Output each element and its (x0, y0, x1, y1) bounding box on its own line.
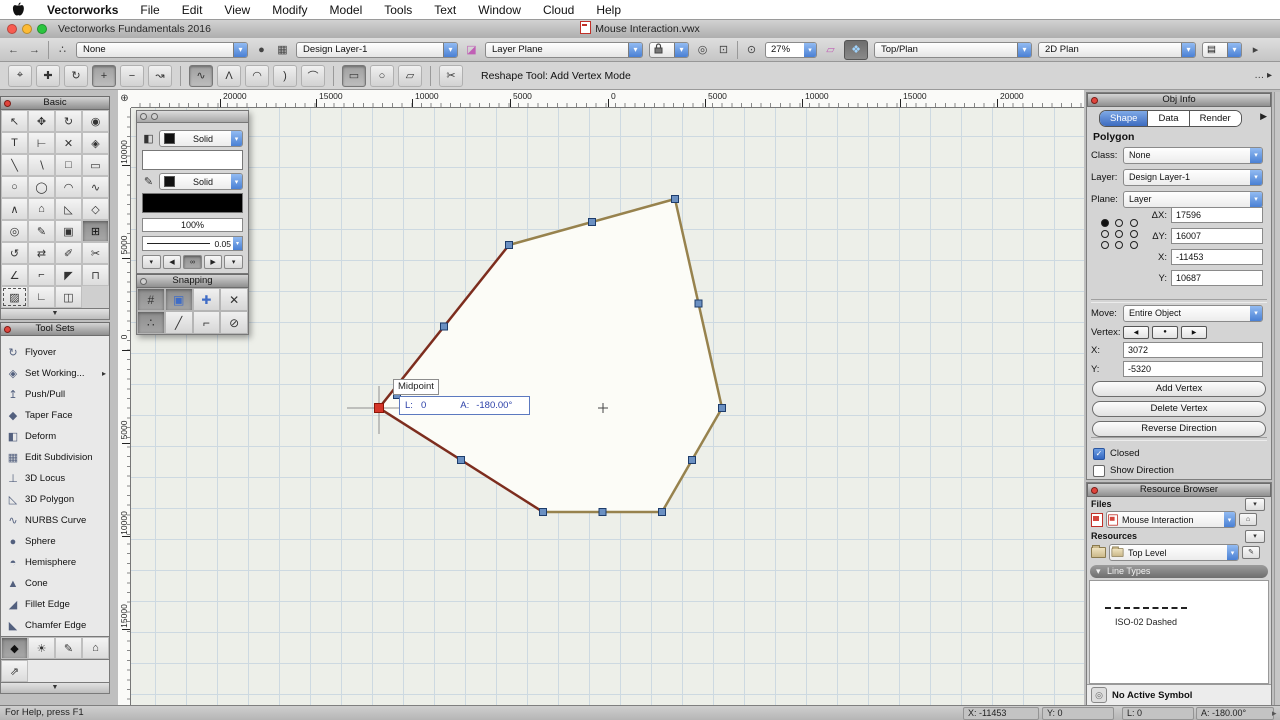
fill-swatch (164, 133, 175, 144)
basic-palette-header[interactable]: Basic (0, 96, 110, 110)
chevron-down-icon: ▾ (1250, 306, 1262, 321)
class-row: Class: None▾ (1091, 147, 1263, 163)
mode-delete-vertex-icon[interactable]: − (120, 65, 144, 87)
midpoint-handle[interactable] (689, 457, 696, 464)
add-vertex-button[interactable]: Add Vertex (1092, 381, 1266, 397)
toolset-tab-dims-notes[interactable]: ✎ (55, 637, 82, 659)
tool-3d-polygon[interactable]: ◺ (55, 198, 82, 220)
toolset-push-pull-icon: ↥ (6, 388, 20, 401)
mode-vertex-cubic-icon[interactable]: ) (273, 65, 297, 87)
menu-edit[interactable]: Edit (182, 3, 203, 17)
dimension-field[interactable]: 10687 (1171, 270, 1263, 286)
reference-dot[interactable] (1101, 241, 1109, 249)
show-direction-checkbox[interactable] (1093, 465, 1105, 477)
toolset-3d-polygon[interactable]: ◺3D Polygon (1, 489, 109, 510)
view-history-icon[interactable]: ∴ (55, 43, 70, 56)
tool-attribute-brush[interactable]: ✐ (55, 242, 82, 264)
tool-eyedropper[interactable]: ✎ (28, 220, 55, 242)
attr-prev[interactable]: ◀ (163, 255, 182, 269)
line-types-list[interactable]: ISO-02 Dashed (1089, 580, 1269, 684)
tool-eraser[interactable]: ▨ (1, 286, 28, 308)
reference-dot[interactable] (1115, 241, 1123, 249)
ruler-label: 0 (119, 324, 129, 350)
reference-dot[interactable] (1115, 230, 1123, 238)
fill-color-preview[interactable] (142, 150, 243, 170)
mode-move-vertex-icon[interactable]: ⌖ (8, 65, 32, 87)
tool-reshape[interactable]: ⊞ (82, 220, 109, 242)
menu-cloud[interactable]: Cloud (543, 3, 574, 17)
separator (430, 66, 431, 86)
zoom-page-icon[interactable]: ◎ (695, 43, 710, 56)
zoom-marquee-icon[interactable]: ⊡ (716, 43, 731, 56)
obj-info-tabs: ShapeDataRender (1099, 110, 1242, 127)
vertex-y-row: Y: -5320 (1091, 361, 1263, 377)
tool-line[interactable]: ╲ (1, 154, 28, 176)
midpoint-handle[interactable] (695, 300, 702, 307)
vertex-x-field[interactable]: 3072 (1123, 342, 1263, 358)
collapse-triangle-icon: ▾ (1096, 566, 1101, 576)
tool-sets-more-icon[interactable]: ▼ (0, 683, 110, 694)
length-value[interactable]: 0 (421, 400, 426, 411)
palette-collapse-icon[interactable] (151, 113, 158, 120)
toolset-3d-locus[interactable]: ⊥3D Locus (1, 468, 109, 489)
fill-bucket-icon: ◧ (142, 132, 155, 145)
symbol-icon: ◎ (1091, 687, 1107, 703)
tab-shape[interactable]: Shape (1100, 111, 1148, 126)
ruler-major-tick (997, 99, 998, 107)
tool-connect-combine[interactable]: ⊓ (82, 264, 109, 286)
vertical-ruler: 100005000050001000015000 (118, 108, 131, 705)
vertex-current-button[interactable]: ● (1152, 326, 1178, 339)
reverse-direction-button[interactable]: Reverse Direction (1092, 421, 1266, 437)
tool-zoom[interactable]: ◉ (82, 110, 109, 132)
toolset-chamfer-edge[interactable]: ◣Chamfer Edge (1, 615, 109, 636)
closed-checkbox[interactable]: ✓ (1093, 448, 1105, 460)
dimension-label: X: (1145, 252, 1171, 263)
chevron-down-icon: ▾ (1250, 192, 1262, 207)
mode-bar-overflow-icon[interactable]: … ▸ (1254, 70, 1272, 81)
obj-info-header[interactable]: Obj Info (1087, 93, 1271, 107)
menu-modify[interactable]: Modify (272, 3, 307, 17)
reference-dot[interactable] (1101, 230, 1109, 238)
dimension-label: ΔY: (1145, 231, 1171, 242)
menu-view[interactable]: View (224, 3, 250, 17)
line-weight-value[interactable]: 0.05 (214, 239, 233, 249)
mode-marquee-rect-icon[interactable]: ▭ (342, 65, 366, 87)
polygon-drawing (131, 108, 1084, 705)
chevron-down-icon: ▾ (231, 174, 242, 189)
layer-dropdown[interactable]: Design Layer-1▾ (1123, 169, 1263, 186)
tool-dimension[interactable]: ⊢ (28, 132, 55, 154)
toolset-taper-face-icon: ◆ (6, 409, 20, 422)
ruler-major-tick (510, 99, 511, 107)
ruler-major-tick (316, 99, 317, 107)
palette-close-icon[interactable] (4, 100, 11, 107)
palette-close-icon[interactable] (1091, 97, 1098, 104)
forward-view-icon[interactable]: → (27, 44, 42, 56)
snapping-grid: #▣✚✕∴╱⌐⊘ (136, 288, 249, 335)
tool-selection[interactable]: ↖ (1, 110, 28, 132)
class-dropdown[interactable]: None▾ (1123, 147, 1263, 164)
toolset-sphere[interactable]: ●Sphere (1, 531, 109, 552)
toolset-edit-subdivision[interactable]: ▦Edit Subdivision (1, 447, 109, 468)
mode-change-vertex-icon[interactable]: ↻ (64, 65, 88, 87)
ruler-label: 0 (611, 91, 616, 101)
snap-distance[interactable]: ╱ (165, 311, 193, 334)
chevron-down-icon: ▾ (1227, 545, 1238, 560)
toolbar-overflow-icon[interactable]: ▸ (1248, 43, 1263, 56)
status-y-field[interactable]: Y: 0 (1042, 707, 1114, 720)
menu-file[interactable]: File (140, 3, 159, 17)
tabs-overflow-icon[interactable]: ▶ (1260, 111, 1267, 122)
ruler-label: 20000 (223, 91, 247, 101)
tool-shear[interactable]: ∠ (1, 264, 28, 286)
ruler-label: 15000 (319, 91, 343, 101)
snap-smart-points[interactable]: ∴ (137, 311, 165, 334)
delete-vertex-button[interactable]: Delete Vertex (1092, 401, 1266, 417)
menu-tools[interactable]: Tools (384, 3, 412, 17)
chevron-down-icon: ▾ (1227, 43, 1241, 57)
tool-rotate[interactable]: ↺ (1, 242, 28, 264)
plane-dropdown[interactable]: Layer▾ (1123, 191, 1263, 208)
mode-hide-edge-icon[interactable]: ↝ (148, 65, 172, 87)
snap-grid[interactable]: # (137, 288, 165, 311)
snap-intersection[interactable]: ✕ (220, 288, 248, 311)
line-weight-preview (147, 243, 210, 244)
angle-value[interactable]: -180.00° (476, 400, 512, 411)
menu-text[interactable]: Text (434, 3, 456, 17)
tool-clip[interactable]: ▣ (55, 220, 82, 242)
active-vertex-handle[interactable] (375, 404, 384, 413)
opacity-field[interactable]: 100% (142, 218, 243, 232)
status-x-field[interactable]: X: -11453 (963, 707, 1039, 720)
angle-label: A: (460, 400, 469, 411)
stepper-icon[interactable]: ▾ (804, 43, 816, 57)
ruler-major-tick (608, 99, 609, 107)
menu-help[interactable]: Help (596, 3, 621, 17)
plane-label: Plane: (1091, 194, 1123, 205)
ruler-label: 10000 (805, 91, 829, 101)
layer-options-icon[interactable]: ▦ (275, 43, 290, 56)
ruler-label: 5000 (119, 417, 129, 443)
tool-polygon[interactable]: ⌂ (28, 198, 55, 220)
palette-close-icon[interactable] (4, 326, 11, 333)
divider (1091, 299, 1267, 303)
home-icon[interactable]: ⌂ (1239, 513, 1257, 526)
vertex-handle[interactable] (719, 405, 726, 412)
toolset-tab-visualization[interactable]: ☀ (28, 637, 55, 659)
resource-browser-palette: Resource Browser Files ▾ Mouse Interacti… (1086, 482, 1272, 706)
status-bar: For Help, press F1 X: -11453 Y: 0 L: 0 A… (0, 705, 1280, 720)
document-icon (580, 21, 591, 34)
checkbox-row: Show Direction (1093, 462, 1265, 479)
dimension-label: Y: (1145, 273, 1171, 284)
chevron-down-icon: ▾ (443, 43, 457, 57)
mode-move-handle-icon[interactable]: ✚ (36, 65, 60, 87)
attr-next[interactable]: ▶ (204, 255, 223, 269)
ruler-major-tick (705, 99, 706, 107)
mode-marquee-polygon-icon[interactable]: ▱ (398, 65, 422, 87)
toolset-sphere-icon: ● (6, 536, 20, 548)
ruler-label: 10000 (415, 91, 439, 101)
resource-folder-dropdown[interactable]: Top Level ▾ (1109, 544, 1239, 561)
toolset-deform[interactable]: ◧Deform (1, 426, 109, 447)
folder-icon (1112, 548, 1124, 557)
line-type-name[interactable]: ISO-02 Dashed (1090, 617, 1202, 627)
vertex-handle[interactable] (540, 509, 547, 516)
ruler-origin-icon: ⊕ (118, 90, 131, 109)
vertex-handle[interactable] (506, 242, 513, 249)
render-sphere-icon[interactable]: ● (254, 44, 269, 56)
stepper-icon[interactable]: ▾ (233, 237, 242, 250)
snapping-palette-header[interactable]: Snapping (136, 274, 249, 288)
separator (180, 66, 181, 86)
checkbox-label: Closed (1110, 448, 1140, 459)
working-plane-icon[interactable]: ◪ (464, 43, 479, 56)
ruler-major-tick (220, 99, 221, 107)
line-type-preview[interactable] (1105, 607, 1187, 609)
vertex-action-buttons: Add VertexDelete VertexReverse Direction (1092, 381, 1266, 441)
submenu-arrow-icon: ▸ (102, 369, 109, 378)
line-weight-control[interactable]: 0.05 ▾ (142, 236, 243, 251)
mode-vertex-tangent-icon[interactable]: ⌒ (301, 65, 325, 87)
active-plane-dropdown[interactable]: Layer Plane▾ (485, 42, 643, 58)
tool-arc[interactable]: ◠ (55, 176, 82, 198)
tool-flyover[interactable]: ↻ (55, 110, 82, 132)
attribute-nav-row: ▾◀∞▶▾ (142, 255, 243, 269)
apple-menu-icon[interactable] (12, 2, 25, 17)
vertex-row: Vertex: ◀●▶ (1091, 324, 1263, 340)
dimension-row: Y:10687 (1145, 270, 1263, 286)
drawing-canvas[interactable]: Midpoint L: 0 A: -180.00° (131, 108, 1084, 705)
active-class-dropdown[interactable]: None▾ (76, 42, 248, 58)
ruler-major-tick (122, 350, 130, 351)
unified-view-button[interactable]: ❖ (844, 40, 868, 60)
saved-views-dropdown[interactable]: ▤ ▾ (1202, 42, 1242, 58)
toolset-tab-3d-modeling[interactable]: ◆ (1, 637, 28, 659)
dimension-field[interactable]: -11453 (1171, 249, 1263, 265)
ruler-label: 20000 (1000, 91, 1024, 101)
vertex-prev-button[interactable]: ◀ (1123, 326, 1149, 339)
toolset-fillet-edge-icon: ◢ (6, 598, 20, 611)
toolset-set-working-plane[interactable]: ◈Set Working...▸ (1, 363, 109, 384)
toolset-nurbs-curve[interactable]: ∿NURBS Curve (1, 510, 109, 531)
toolset-set-working-plane-icon: ◈ (6, 367, 20, 380)
menu-model[interactable]: Model (330, 3, 363, 17)
snap-object[interactable]: ▣ (165, 288, 193, 311)
toolset-taper-face[interactable]: ◆Taper Face (1, 405, 109, 426)
vertex-label: Vertex: (1091, 327, 1123, 338)
status-a-field[interactable]: A: -180.00° (1196, 707, 1274, 720)
magnifier-icon[interactable]: ⊙ (744, 43, 759, 56)
tool-delete[interactable]: ✕ (55, 132, 82, 154)
dimension-row: X:-11453 (1145, 249, 1263, 265)
lock-icon (650, 43, 674, 57)
palette-close-icon[interactable] (1091, 487, 1098, 494)
view-dropdown[interactable]: Top/Plan▾ (874, 42, 1032, 58)
mode-vertex-corner-icon[interactable]: Λ (217, 65, 241, 87)
tool-pan[interactable]: ✥ (28, 110, 55, 132)
help-hint: For Help, press F1 (5, 707, 84, 718)
attributes-title-bar[interactable] (136, 110, 249, 123)
tool-double-line[interactable]: ∖ (28, 154, 55, 176)
snap-tooltip: Midpoint (393, 379, 439, 395)
vertex-y-label: Y: (1091, 364, 1123, 375)
tool-circle[interactable]: ○ (1, 176, 28, 198)
chevron-down-icon: ▾ (231, 131, 242, 146)
reference-dot[interactable] (1130, 241, 1138, 249)
mode-vertex-bezier-icon[interactable]: ◠ (245, 65, 269, 87)
ruler-major-tick (122, 165, 130, 166)
midpoint-handle[interactable] (441, 323, 448, 330)
tool-regular-polygon[interactable]: ◇ (82, 198, 109, 220)
title-bar[interactable]: Vectorworks Fundamentals 2016 Mouse Inte… (0, 20, 1280, 39)
tool-text[interactable]: T (1, 132, 28, 154)
palette-close-icon[interactable] (140, 278, 147, 285)
back-view-icon[interactable]: ← (6, 44, 21, 56)
palette-scroll-strip[interactable] (1274, 92, 1280, 706)
resources-menu-icon[interactable]: ▾ (1245, 530, 1265, 543)
reference-dot[interactable] (1130, 230, 1138, 238)
midpoint-handle[interactable] (458, 457, 465, 464)
basic-tool-palette: Basic ↖✥↻◉T⊢✕◈╲∖□▭○◯◠∿∧⌂◺◇◎✎▣⊞↺⇄✐✂∠⌐◤⊓▨∟… (0, 96, 110, 320)
status-overflow-icon[interactable]: ▸ (1272, 708, 1277, 719)
tool-freehand[interactable]: ∿ (82, 176, 109, 198)
mode-vertex-polyline-icon[interactable]: ∿ (189, 65, 213, 87)
tool-chamfer[interactable]: ◤ (55, 264, 82, 286)
vertex-handle[interactable] (659, 509, 666, 516)
files-label: Files (1091, 499, 1112, 509)
toolset-deform-icon: ◧ (6, 430, 20, 443)
chevron-down-icon: ▾ (1250, 170, 1262, 185)
toolset-edit-subdivision-icon: ▦ (6, 451, 20, 464)
folder-icon (1091, 547, 1106, 558)
tool-move-by-points[interactable]: ∟ (28, 286, 55, 308)
tool-symbol-insert[interactable]: ◫ (55, 286, 82, 308)
tab-data[interactable]: Data (1148, 111, 1189, 126)
tool-sets-header[interactable]: Tool Sets (0, 322, 110, 336)
checkbox-row: ✓Closed (1093, 445, 1265, 462)
menu-vectorworks[interactable]: Vectorworks (47, 3, 118, 17)
zoom-level-field[interactable]: 27%▾ (765, 42, 817, 58)
move-row: Move: Entire Object▾ (1091, 305, 1263, 321)
layer-label: Layer: (1091, 172, 1123, 183)
reference-dot[interactable] (1130, 219, 1138, 227)
tab-render[interactable]: Render (1190, 111, 1241, 126)
tool-mirror[interactable]: ⇄ (28, 242, 55, 264)
palette-close-icon[interactable] (140, 113, 147, 120)
ruler-label: 10000 (119, 139, 129, 165)
vertex-handle[interactable] (672, 196, 679, 203)
dimension-field[interactable]: 16007 (1171, 228, 1263, 244)
reference-point-selector[interactable] (1101, 219, 1141, 249)
resource-browser-header[interactable]: Resource Browser (1087, 483, 1271, 497)
resource-tool-icon[interactable]: ✎ (1242, 546, 1260, 559)
file-row: Mouse Interaction ▾ ⌂ (1091, 511, 1257, 528)
attr-drop-right[interactable]: ▾ (224, 255, 243, 269)
tool-3d-cube[interactable]: ◈ (82, 132, 109, 154)
midpoint-handle[interactable] (589, 219, 596, 226)
ruler-label: 5000 (119, 232, 129, 258)
length-label: L: (405, 400, 413, 411)
pen-color-preview[interactable] (142, 193, 243, 213)
separator (48, 41, 49, 59)
vertex-y-field[interactable]: -5320 (1123, 361, 1263, 377)
tool-polyline[interactable]: ∧ (1, 198, 28, 220)
line-types-section-header[interactable]: ▾ Line Types (1090, 565, 1268, 578)
tool-rectangle[interactable]: □ (55, 154, 82, 176)
ruler-major-tick (900, 99, 901, 107)
menu-window[interactable]: Window (478, 3, 521, 17)
tool-set-tabs-row2: ⇗ (0, 660, 110, 683)
pen-style-dropdown[interactable]: Solid ▾ (159, 173, 243, 190)
checkbox-label: Show Direction (1110, 465, 1174, 476)
attr-drop-left[interactable]: ▾ (142, 255, 161, 269)
toolset-flyover[interactable]: ↻Flyover (1, 342, 109, 363)
tool-rounded-rectangle[interactable]: ▭ (82, 154, 109, 176)
chevron-down-icon: ▾ (1250, 148, 1262, 163)
toolset-hemisphere[interactable]: ◓Hemisphere (1, 552, 109, 573)
reference-dot[interactable] (1101, 219, 1109, 227)
divider (1091, 437, 1267, 441)
polygon-fill[interactable] (379, 199, 722, 512)
toolset-cone[interactable]: ▲Cone (1, 573, 109, 594)
file-dropdown[interactable]: Mouse Interaction ▾ (1106, 511, 1236, 528)
snap-angle[interactable]: ✚ (193, 288, 221, 311)
tool-spiral[interactable]: ◎ (1, 220, 28, 242)
pen-swatch (164, 176, 175, 187)
ruler-major-tick (122, 258, 130, 259)
midpoint-handle[interactable] (599, 509, 606, 516)
basic-palette-more-icon[interactable]: ▼ (0, 309, 110, 320)
fill-style-dropdown[interactable]: Solid ▾ (159, 130, 243, 147)
reference-dot[interactable] (1115, 219, 1123, 227)
files-menu-icon[interactable]: ▾ (1245, 498, 1265, 511)
lock-options-dropdown[interactable]: ▾ (649, 42, 689, 58)
attr-link[interactable]: ∞ (183, 255, 202, 269)
move-label: Move: (1091, 308, 1123, 319)
toolset-push-pull[interactable]: ↥Push/Pull (1, 384, 109, 405)
toolset-tab-site-planning[interactable]: ⇗ (1, 660, 28, 682)
tool-fillet[interactable]: ⌐ (28, 264, 55, 286)
snap-tangent[interactable]: ⊘ (220, 311, 248, 334)
render-mode-dropdown[interactable]: 2D Plan▾ (1038, 42, 1196, 58)
active-layer-dropdown[interactable]: Design Layer-1▾ (296, 42, 458, 58)
look-at-working-plane-icon[interactable]: ▱ (823, 43, 838, 56)
vectorworks-window: VectorworksFileEditViewModifyModelToolsT… (0, 0, 1280, 720)
ruler-major-tick (122, 629, 130, 630)
snap-smart-edge[interactable]: ⌐ (193, 311, 221, 334)
toolset-fillet-edge[interactable]: ◢Fillet Edge (1, 594, 109, 615)
move-dropdown[interactable]: Entire Object▾ (1123, 305, 1263, 322)
mode-add-vertex-icon[interactable]: + (92, 65, 116, 87)
separator (737, 41, 738, 59)
polygon-options: ✓ClosedShow Direction (1093, 445, 1265, 479)
mode-marquee-lasso-icon[interactable]: ○ (370, 65, 394, 87)
dimension-fields: ΔX:17596ΔY:16007X:-11453Y:10687 (1145, 207, 1263, 291)
vertex-nav-buttons: ◀●▶ (1123, 326, 1207, 339)
toolset-tab-building-shell[interactable]: ⌂ (82, 637, 109, 659)
vertex-next-button[interactable]: ▶ (1181, 326, 1207, 339)
mode-hidden-line-options-icon[interactable]: ✂ (439, 65, 463, 87)
status-l-field[interactable]: L: 0 (1122, 707, 1194, 720)
vertex-x-label: X: (1091, 345, 1123, 356)
tool-oval[interactable]: ◯ (28, 176, 55, 198)
ruler-major-tick (122, 536, 130, 537)
ruler-label: 5000 (708, 91, 727, 101)
tool-trim[interactable]: ✂ (82, 242, 109, 264)
dimension-field[interactable]: 17596 (1171, 207, 1263, 223)
